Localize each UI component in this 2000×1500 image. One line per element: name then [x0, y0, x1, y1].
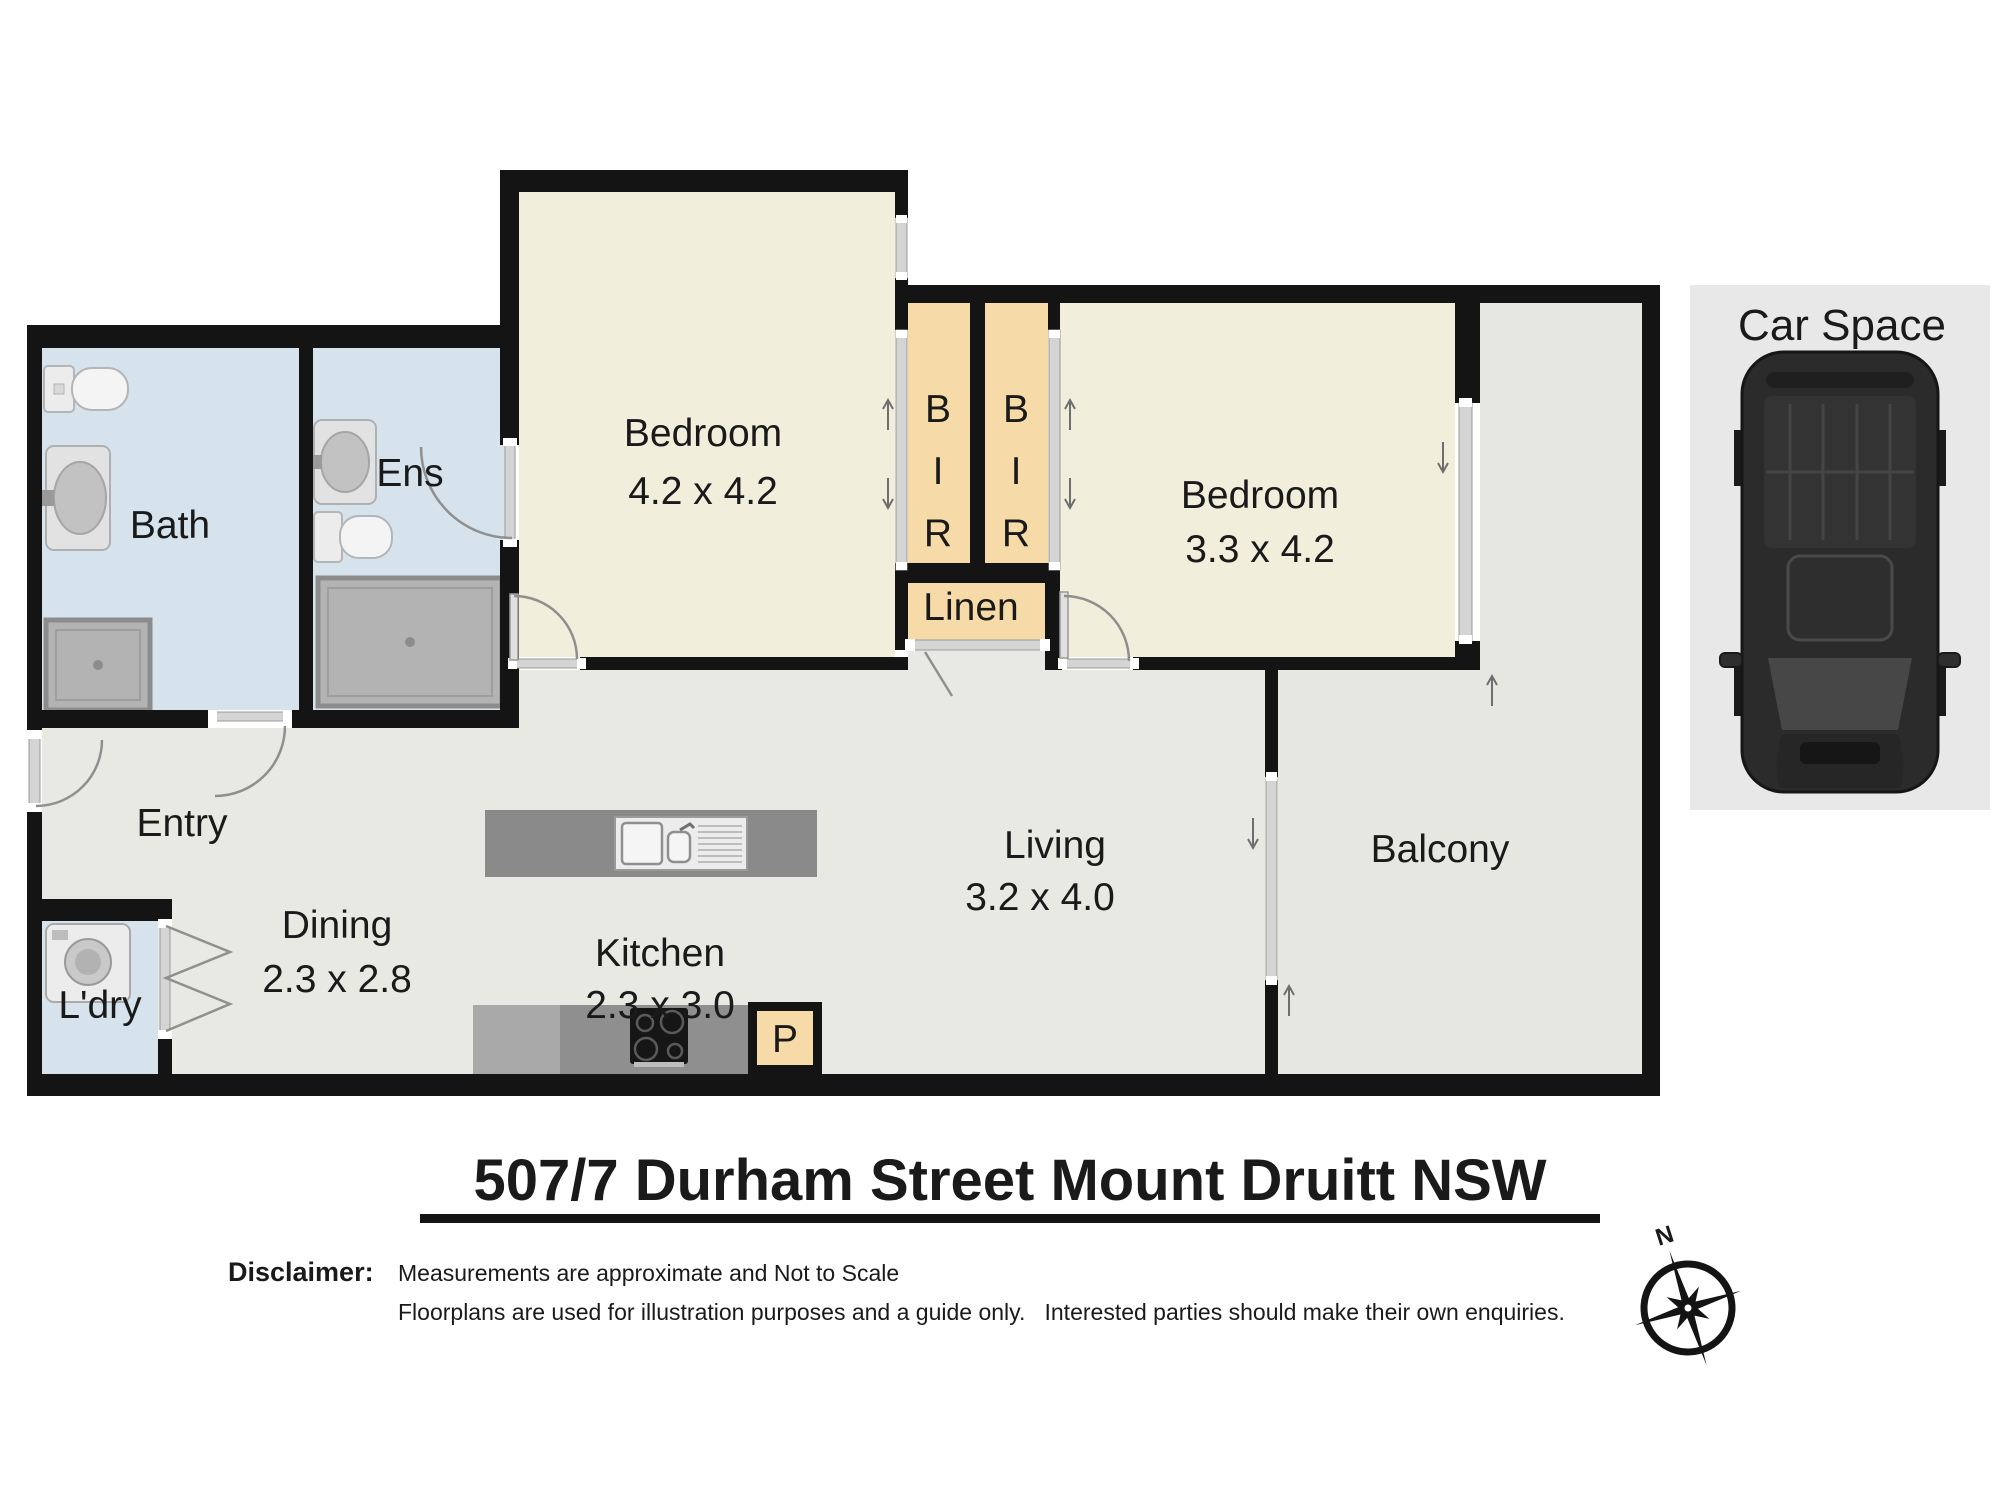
bir1-sliding-door: [896, 330, 907, 570]
bath-toilet-button: [54, 384, 64, 394]
linen-label: Linen: [923, 586, 1018, 629]
ens-toilet-bowl: [340, 516, 392, 558]
page-title: 507/7 Durham Street Mount Druitt NSW: [473, 1148, 1546, 1213]
washing-machine-dial: [52, 930, 68, 940]
bedroom2-door-sill: [1062, 659, 1133, 668]
bir1-letter-b: B: [925, 388, 951, 431]
car-grille: [1800, 742, 1880, 764]
bedroom1-label: Bedroom: [624, 412, 782, 455]
floorplan-page: Bath Ens Bedroom 4.2 x 4.2 B I R B I R B…: [0, 0, 2000, 1500]
hall-door-sill: [212, 712, 287, 721]
dining-dims: 2.3 x 2.8: [262, 958, 412, 1001]
bedroom1-dims: 4.2 x 4.2: [628, 470, 778, 513]
bedroom1-window: [896, 218, 907, 278]
car-space: Car Space: [1690, 285, 1990, 810]
pantry-label: P: [772, 1018, 798, 1061]
kitchen-dims: 2.3 x 3.0: [585, 984, 735, 1027]
floorplan-canvas: Bath Ens Bedroom 4.2 x 4.2 B I R B I R B…: [0, 0, 2000, 1500]
bedroom1-door-leaf: [510, 594, 518, 660]
ens-label: Ens: [376, 452, 443, 495]
entry-door-sill: [29, 736, 40, 806]
entry-label: Entry: [136, 802, 228, 845]
dining-label: Dining: [282, 904, 393, 947]
cooktop-edge: [634, 1062, 684, 1067]
car-mirror-right: [1938, 653, 1960, 667]
bedroom2-door-leaf: [1060, 592, 1068, 658]
title-underline: [420, 1214, 1600, 1223]
ens-door-sill: [505, 445, 515, 540]
balcony-label: Balcony: [1371, 828, 1510, 871]
kitchen-label: Kitchen: [595, 932, 725, 975]
compass-north-label: N: [1652, 1221, 1677, 1252]
bir1-letter-r: R: [924, 512, 952, 555]
car-sunroof: [1788, 556, 1892, 640]
car-top-view: [1720, 352, 1960, 792]
bedroom1-door-sill: [513, 659, 580, 668]
car-mirror-left: [1720, 653, 1742, 667]
disclaimer-line2: Floorplans are used for illustration pur…: [398, 1299, 1565, 1325]
washing-machine-drum: [75, 949, 101, 975]
bath-label: Bath: [130, 504, 210, 547]
bath-shower-drain: [93, 660, 103, 670]
disclaimer-line1: Measurements are approximate and Not to …: [398, 1260, 899, 1286]
bir2-letter-b: B: [1003, 388, 1029, 431]
ens-toilet-tank: [314, 512, 342, 562]
bir1-letter-i: I: [933, 450, 944, 493]
disclaimer: Disclaimer: Measurements are approximate…: [228, 1257, 1565, 1325]
bedroom2-dims: 3.3 x 4.2: [1185, 528, 1335, 571]
kitchen-counter-left: [473, 1005, 560, 1074]
bath-basin: [54, 462, 106, 534]
sink-drainer: [698, 826, 742, 862]
laundry-label: L'dry: [58, 984, 142, 1027]
bir2-sliding-door: [1049, 330, 1060, 570]
bir2-letter-i: I: [1011, 450, 1022, 493]
living-dims: 3.2 x 4.0: [965, 876, 1115, 919]
compass-rose: N: [1607, 1206, 1760, 1382]
balcony-sliding-door: [1266, 777, 1277, 980]
disclaimer-label: Disclaimer:: [228, 1257, 374, 1287]
car-trunk: [1766, 372, 1914, 388]
ens-basin: [321, 432, 369, 492]
ens-shower-drain: [405, 637, 415, 647]
bath-tap: [42, 490, 54, 506]
bedroom2-label: Bedroom: [1181, 474, 1339, 517]
linen-sliding-door: [908, 640, 1045, 650]
bath-toilet-bowl: [72, 368, 128, 410]
sink-basin-small: [668, 832, 690, 862]
sink-basin-large: [622, 823, 662, 864]
bedroom2-window: [1459, 403, 1472, 641]
living-label: Living: [1004, 824, 1106, 867]
car-windshield: [1768, 658, 1912, 730]
car-space-label: Car Space: [1738, 301, 1946, 350]
title-block: 507/7 Durham Street Mount Druitt NSW: [420, 1148, 1600, 1223]
bir2-letter-r: R: [1002, 512, 1030, 555]
